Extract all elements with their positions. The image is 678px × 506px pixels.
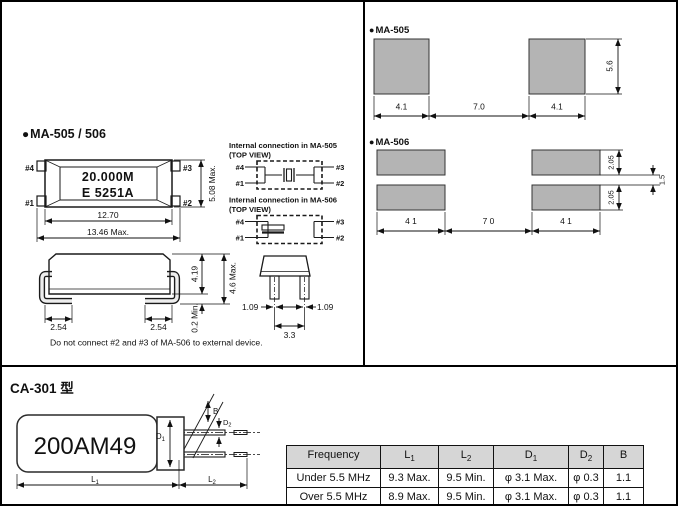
lead-left bbox=[42, 274, 72, 301]
dim-pad-left: 2.54 bbox=[45, 305, 72, 332]
conn506-pin3: #3 bbox=[336, 218, 344, 227]
dimension-table: Frequency L1 L2 D1 D2 B Under 5.5 MHz 9.… bbox=[286, 445, 644, 506]
conn505-pin3: #3 bbox=[336, 163, 344, 172]
col-l1: L1 bbox=[381, 446, 439, 469]
cell: Over 5.5 MHz bbox=[287, 488, 381, 506]
pin3-label: #3 bbox=[183, 164, 192, 173]
cell: 9.3 Max. bbox=[381, 469, 439, 488]
dim-standoff: 0.2 Min. bbox=[180, 284, 230, 333]
dim-pad-right-label: 2.54 bbox=[150, 322, 167, 332]
table-header-row: Frequency L1 L2 D1 D2 B bbox=[287, 446, 644, 469]
conn506-title: Internal connection in MA-506 bbox=[229, 196, 337, 205]
conn506-pin2: #2 bbox=[336, 234, 344, 243]
dim-lead-span-label: 3.3 bbox=[284, 330, 296, 340]
dim-d2-label: D2 bbox=[223, 418, 231, 429]
dim-right-label: 4 1 bbox=[560, 216, 572, 226]
dim-total-height: 4.6 Max. bbox=[224, 254, 238, 304]
land506-pad-br bbox=[532, 185, 600, 210]
table-row: Over 5.5 MHz 8.9 Max. 9.5 Min. φ 3.1 Max… bbox=[287, 488, 644, 506]
conn505-subtitle: (TOP VIEW) bbox=[229, 151, 271, 160]
conn505-pin2: #2 bbox=[336, 179, 344, 188]
dim-l2-label: L2 bbox=[208, 475, 216, 486]
dim-pad-bottom: 2.05 bbox=[600, 185, 660, 210]
dim-lead-span: 3.3 bbox=[275, 311, 305, 340]
land506-pad-tl bbox=[377, 150, 445, 175]
internal-connections: Internal connection in MA-505 (TOP VIEW)… bbox=[228, 140, 365, 253]
cell: 8.9 Max. bbox=[381, 488, 439, 506]
cell: Under 5.5 MHz bbox=[287, 469, 381, 488]
bullet-icon: ● bbox=[22, 127, 29, 141]
cell: 9.5 Min. bbox=[439, 488, 494, 506]
conn506-pin4: #4 bbox=[236, 218, 245, 227]
dim-height-label: 5.08 Max. bbox=[207, 165, 217, 201]
cell: 1.1 bbox=[604, 488, 644, 506]
dim-gap-vertical: 1.5 bbox=[653, 165, 667, 195]
dim-b: B bbox=[208, 401, 218, 422]
cell: φ 0.3 bbox=[569, 488, 604, 506]
dim-pad-top-label: 2.05 bbox=[607, 155, 616, 169]
dim-pad-height: 5.6 bbox=[586, 39, 622, 94]
cell: φ 3.1 Max. bbox=[494, 488, 569, 506]
cell: φ 0.3 bbox=[569, 469, 604, 488]
conn505-pin4: #4 bbox=[236, 163, 245, 172]
col-d2: D2 bbox=[569, 446, 604, 469]
dim-body-label: 4.19 bbox=[190, 266, 200, 283]
dim-b-label: B bbox=[213, 407, 218, 416]
conn505-title: Internal connection in MA-505 bbox=[229, 141, 338, 150]
dim-bottom: 4 1 7 0 4 1 bbox=[377, 212, 600, 235]
conn506-subtitle: (TOP VIEW) bbox=[229, 205, 271, 214]
marking-frequency: 20.000M bbox=[82, 170, 134, 184]
dim-gap-label: 7 0 bbox=[483, 216, 495, 226]
pin4-label: #4 bbox=[25, 164, 34, 173]
package-end-view: 1.09 1.09 3.3 bbox=[242, 248, 364, 346]
dim-pad-height-label: 5.6 bbox=[606, 60, 615, 72]
dim-body-height: 4.19 bbox=[172, 254, 230, 294]
table-row: Under 5.5 MHz 9.3 Max. 9.5 Min. φ 3.1 Ma… bbox=[287, 469, 644, 488]
pkg-heading-text: MA-505 / 506 bbox=[30, 127, 106, 141]
dim-lead-right: 1.09 bbox=[306, 302, 334, 312]
dim-left-label: 4.1 bbox=[396, 102, 408, 112]
dim-left-label: 4 1 bbox=[405, 216, 417, 226]
land506-pattern: 2.05 2.05 1.5 4 1 7 0 4 1 bbox=[365, 145, 678, 245]
land505-pattern: 5.6 4.1 7.0 4.1 bbox=[365, 32, 678, 127]
dim-pad-bottom-label: 2.05 bbox=[607, 190, 616, 204]
datasheet-page: ●MA-505 / 506 20.000M E 5251A #4 #1 #3 #… bbox=[0, 0, 678, 506]
dim-inner-label: 12.70 bbox=[97, 210, 119, 220]
land506-pad-tr bbox=[532, 150, 600, 175]
conn506-diagram: #4 #1 #3 #2 bbox=[236, 216, 345, 244]
connection-note: Do not connect #2 and #3 of MA-506 to ex… bbox=[50, 338, 263, 348]
dim-pad-right: 2.54 bbox=[145, 305, 172, 332]
package-top-view: 20.000M E 5251A #4 #1 #3 #2 5.08 Max. 12… bbox=[16, 140, 238, 250]
dim-lead-left: 1.09 bbox=[242, 302, 273, 312]
side-body bbox=[49, 254, 170, 294]
dim-gap-v-label: 1.5 bbox=[658, 175, 667, 185]
dim-lead-right-label: 1.09 bbox=[317, 302, 334, 312]
dim-total-label: 4.6 Max. bbox=[228, 262, 238, 294]
cell: 9.5 Min. bbox=[439, 469, 494, 488]
land505-pad-left bbox=[374, 39, 429, 94]
dim-bottom: 4.1 7.0 4.1 bbox=[374, 96, 585, 120]
ca301-crystal-drawing: 200AM49 D1 B D2 L1 L2 bbox=[7, 390, 282, 498]
dim-pad-top: 2.05 bbox=[600, 150, 660, 175]
dim-l2: L2 bbox=[179, 458, 247, 489]
land506-pad-bl bbox=[377, 185, 445, 210]
dim-inner-width: 12.70 bbox=[45, 209, 172, 225]
marking-code: E 5251A bbox=[82, 186, 134, 200]
dim-pad-left-label: 2.54 bbox=[50, 322, 67, 332]
dim-gap-label: 7.0 bbox=[473, 102, 485, 112]
conn506-pin1: #1 bbox=[236, 234, 244, 243]
pin2-label: #2 bbox=[183, 199, 192, 208]
dim-right-label: 4.1 bbox=[551, 102, 563, 112]
land505-pad-right bbox=[529, 39, 585, 94]
crystal-cap bbox=[157, 417, 184, 470]
dim-l1-label: L1 bbox=[91, 475, 99, 486]
col-frequency: Frequency bbox=[287, 446, 381, 469]
conn505-diagram: #4 #1 #3 #2 bbox=[236, 161, 345, 189]
crystal-marking: 200AM49 bbox=[34, 433, 137, 460]
pkg-section-heading: ●MA-505 / 506 bbox=[22, 127, 106, 141]
col-d1: D1 bbox=[494, 446, 569, 469]
dim-lead-left-label: 1.09 bbox=[242, 302, 259, 312]
col-l2: L2 bbox=[439, 446, 494, 469]
horizontal-divider bbox=[2, 365, 678, 367]
end-body bbox=[260, 256, 310, 276]
col-b: B bbox=[604, 446, 644, 469]
lead-right bbox=[145, 274, 177, 301]
conn505-pin1: #1 bbox=[236, 179, 244, 188]
cell: 1.1 bbox=[604, 469, 644, 488]
cell: φ 3.1 Max. bbox=[494, 469, 569, 488]
pin1-label: #1 bbox=[25, 199, 34, 208]
dim-outer-label: 13.46 Max. bbox=[87, 227, 129, 237]
dim-standoff-label: 0.2 Min. bbox=[190, 303, 200, 333]
